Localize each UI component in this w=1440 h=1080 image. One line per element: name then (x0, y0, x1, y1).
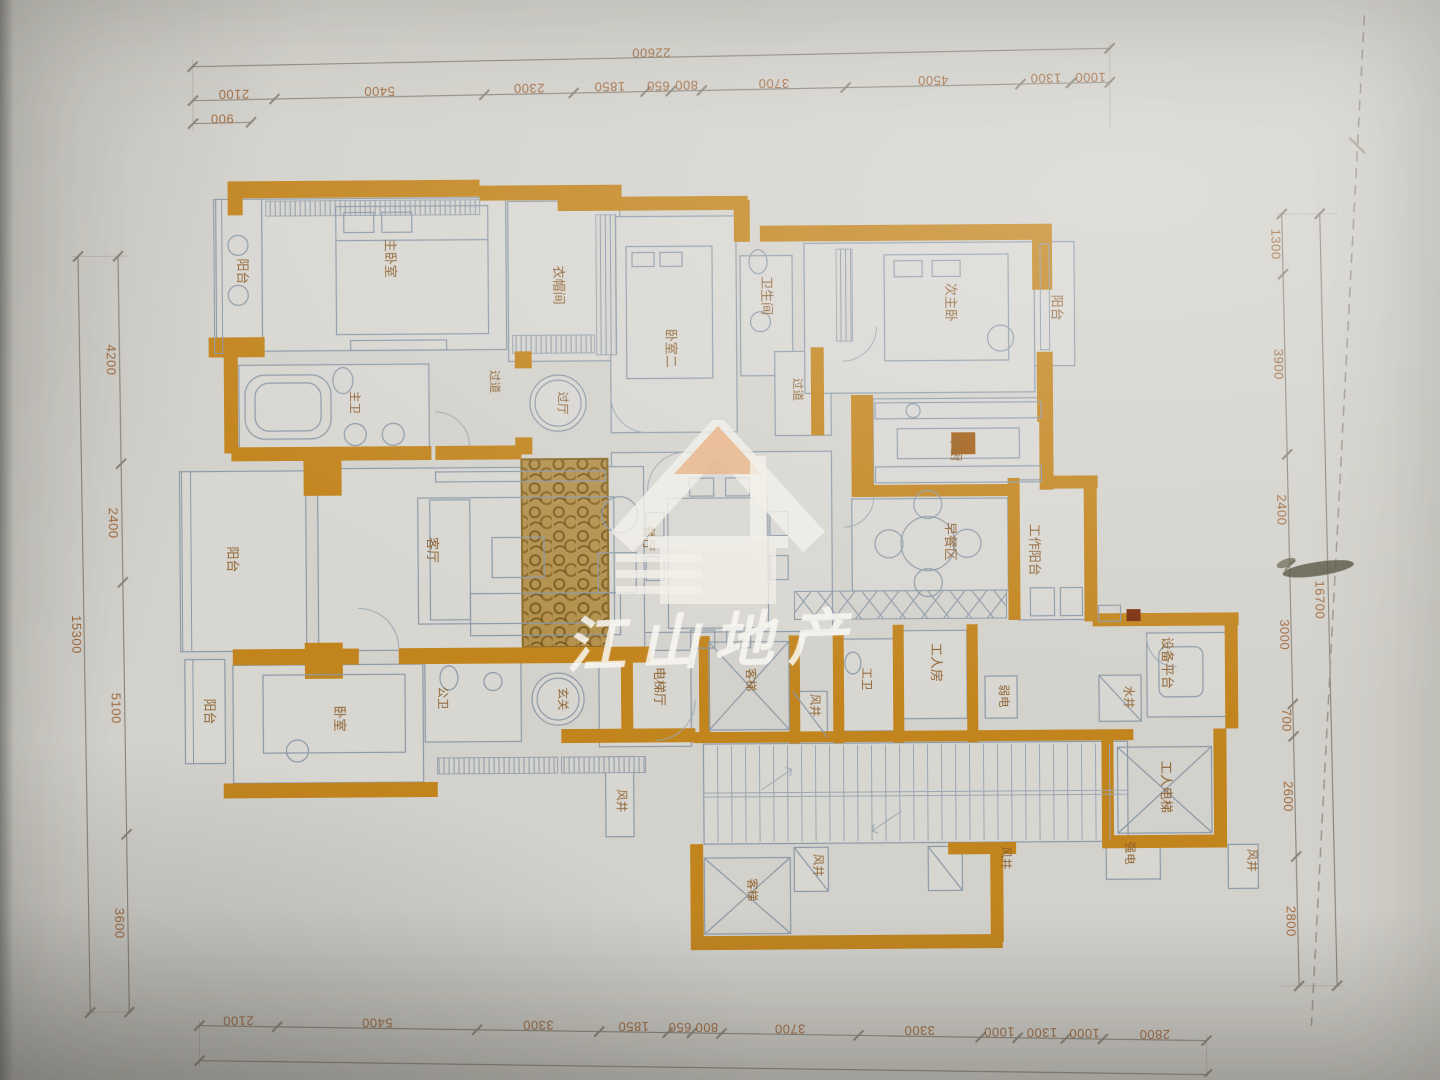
room-label-worker-elevator: 工人电梯 (1159, 761, 1174, 813)
room-label-air-shaft-d: 风井 (615, 789, 629, 812)
dark-smudge (1282, 557, 1355, 581)
room-label-air-shaft-e: 风井 (1245, 849, 1259, 872)
room-label-strong-electric: 强电 (1123, 842, 1136, 866)
boundary-dashed-line (1304, 15, 1371, 1025)
dim-right-2: 2400 (1274, 494, 1289, 525)
dim-top-sub-left: 900 (210, 111, 233, 126)
room-label-passenger-elevator: 客梯 (744, 668, 758, 691)
room-label-chinese-kitchen: 中厨 (948, 435, 963, 461)
room-label-worker-bathroom: 工卫 (860, 667, 872, 690)
dim-top-8: 1300 (1030, 70, 1061, 85)
room-label-water-shaft: 水井 (1122, 686, 1136, 709)
ornate-runner (521, 459, 608, 648)
room-label-air-shaft-b: 风井 (811, 854, 825, 877)
room-label-air-shaft-a: 风井 (808, 694, 822, 717)
room-label-equipment-platform: 设备平台 (1160, 637, 1175, 689)
dim-top-1: 5400 (364, 84, 395, 99)
room-label-hall: 过厅 (556, 392, 569, 415)
dim-bottom-1: 5400 (362, 1015, 393, 1030)
room-label-corridor-master: 过道 (488, 370, 502, 394)
dim-left-3: 3600 (112, 908, 127, 939)
room-label-balcony-top-left: 阳台 (235, 258, 250, 284)
dim-left-0: 4200 (103, 344, 118, 375)
room-label-bathroom: 卫生间 (759, 276, 774, 315)
dim-left-overall: 15300 (69, 615, 84, 654)
dim-bottom-3: 1850 (618, 1019, 649, 1034)
room-label-dining-room: 餐厅 (641, 525, 656, 551)
dim-top-4: 650 (646, 78, 669, 93)
room-label-breakfast-area: 早餐区 (943, 522, 958, 561)
dim-right-4: 700 (1279, 709, 1294, 732)
room-label-passenger-elevator-lower: 客梯 (745, 878, 759, 901)
dim-bottom-6: 3700 (774, 1021, 805, 1036)
dim-right-6: 2800 (1284, 906, 1299, 937)
dim-left-2: 5100 (109, 693, 124, 724)
dim-right-5: 2600 (1281, 781, 1296, 812)
room-label-cloakroom: 衣帽间 (551, 266, 566, 305)
dim-top-overall: 22600 (632, 45, 671, 60)
room-label-master-bedroom: 主卧室 (383, 239, 398, 278)
room-label-bedroom: 卧室 (332, 706, 347, 732)
dim-right-1: 3900 (1271, 349, 1286, 380)
room-label-balcony-bottom-left: 阳台 (202, 699, 217, 725)
dim-bottom-0: 2100 (223, 1013, 254, 1028)
dim-bottom-4: 650 (668, 1020, 691, 1035)
room-label-weak-electric: 弱电 (997, 684, 1010, 708)
room-label-worker-room: 工人房 (929, 643, 944, 682)
room-label-public-bathroom: 公卫 (436, 686, 449, 709)
room-label-air-shaft-c: 风井 (999, 846, 1013, 869)
dim-top-5: 800 (675, 78, 698, 93)
dim-top-2: 2300 (513, 81, 544, 96)
dim-bottom-7: 3300 (904, 1023, 935, 1038)
room-label-bedroom-two: 卧室二 (664, 329, 679, 368)
dim-top-3: 1850 (594, 79, 625, 94)
dim-top-6: 3700 (758, 76, 789, 91)
dim-left-1: 2400 (106, 508, 121, 539)
dim-bottom-8: 1000 (984, 1024, 1015, 1039)
dim-top-7: 4500 (917, 73, 948, 88)
room-label-balcony-right: 阳台 (1049, 295, 1064, 321)
dim-right-0: 1300 (1268, 229, 1283, 260)
room-label-living-room: 客厅 (425, 537, 440, 563)
dim-bottom-2: 3300 (523, 1018, 554, 1033)
dim-bottom-11: 2800 (1139, 1027, 1170, 1042)
room-label-elevator-hall: 电梯厅 (652, 667, 667, 706)
lattice-door (794, 590, 1006, 619)
dim-bottom-9: 1300 (1026, 1025, 1057, 1040)
room-label-corridor-right: 过道 (791, 378, 805, 402)
room-label-master-bathroom: 主卫 (348, 391, 361, 414)
room-label-second-master-bedroom: 次主卧 (943, 283, 958, 322)
floor-plan-drawing: 2100540023001850650800370045001300100021… (0, 0, 1440, 1080)
room-label-foyer: 玄关 (556, 688, 570, 712)
dim-bottom-10: 1000 (1069, 1026, 1100, 1041)
room-label-work-balcony: 工作阳台 (1027, 524, 1042, 576)
dim-bottom-5: 800 (695, 1020, 718, 1035)
dim-top-0: 2100 (218, 87, 249, 102)
room-label-balcony-left: 阳台 (225, 546, 240, 572)
dim-right-overall: 16700 (1312, 580, 1327, 619)
floor-plan-photo: 2100540023001850650800370045001300100021… (0, 0, 1440, 1080)
dim-top-9: 1000 (1075, 70, 1106, 85)
dim-right-3: 3000 (1277, 619, 1292, 650)
